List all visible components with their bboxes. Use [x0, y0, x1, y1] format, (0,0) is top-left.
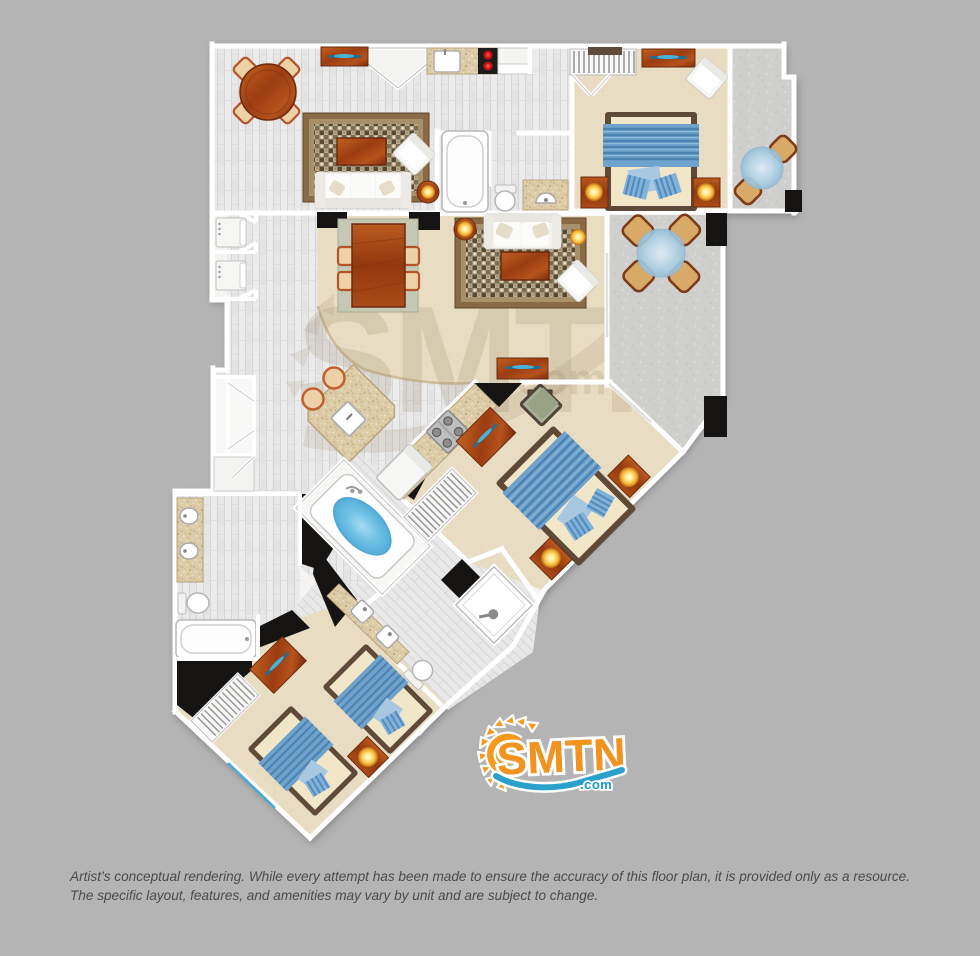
svg-text:.com: .com [580, 777, 612, 792]
svg-text:Artist’s conceptual rendering.: Artist’s conceptual rendering. While eve… [69, 869, 910, 884]
svg-text:The specific layout, features,: The specific layout, features, and ameni… [70, 888, 598, 903]
